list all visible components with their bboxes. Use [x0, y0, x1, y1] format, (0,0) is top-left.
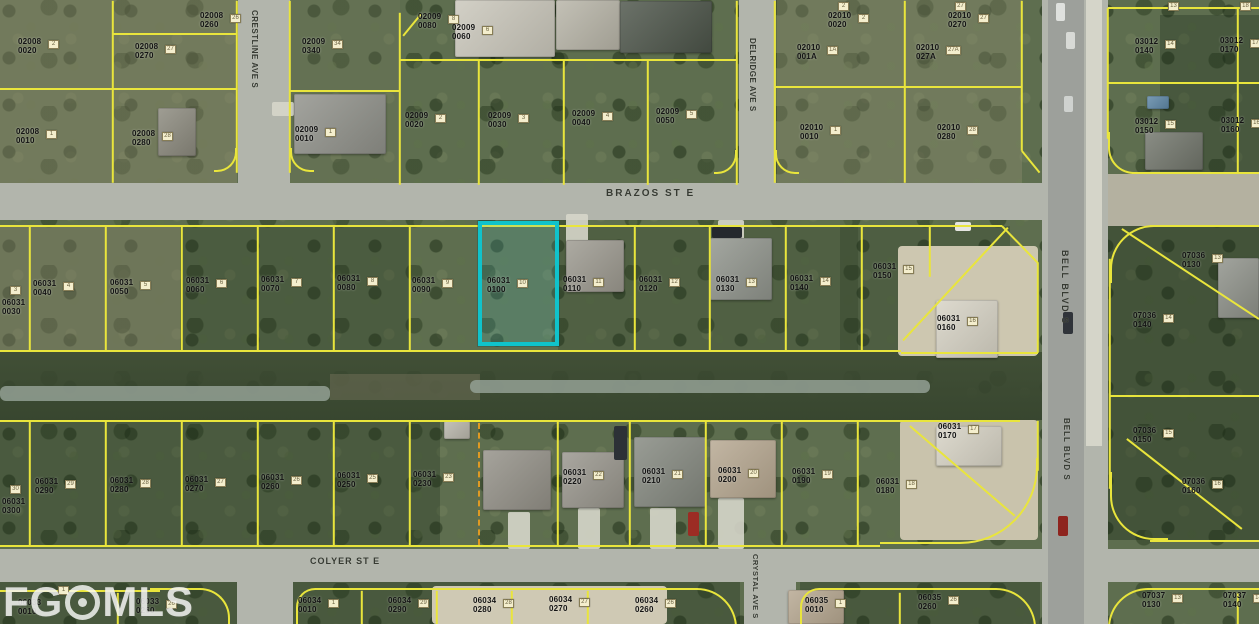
parcel-boundary-line — [1110, 395, 1259, 397]
lot-number-tag: 11 — [593, 278, 604, 287]
lot-number-tag: 2 — [48, 40, 59, 49]
lot-number-tag: 2 — [838, 2, 849, 11]
parcel-label: 02010 0280 — [937, 124, 960, 142]
parcel-label: 02008 0260 — [200, 12, 223, 30]
lot-number-tag: 7 — [291, 278, 302, 287]
parcel-label: 06031 0140 — [790, 275, 813, 293]
lot-number-tag: 27 — [215, 478, 226, 487]
driveway — [508, 512, 530, 549]
lot-number-tag: 14 — [1163, 314, 1174, 323]
lot-number-tag: 28 — [140, 479, 151, 488]
street-label: DELRIDGE AVE S — [748, 38, 757, 112]
parcel-label: 06031 0070 — [261, 276, 284, 294]
street-label: BRAZOS ST E — [606, 188, 695, 199]
vehicle — [1058, 516, 1068, 536]
parcel-label: 06031 0090 — [412, 277, 435, 295]
road-brazos-st-e — [0, 183, 1046, 220]
parcel-label: 06034 0270 — [549, 596, 572, 614]
parcel-boundary-line — [1109, 259, 1111, 489]
canal-water — [470, 380, 930, 393]
parcel-label: 06031 0110 — [563, 276, 586, 294]
lot-number-tag: 34 — [332, 40, 343, 49]
parcel-label: 02010 0010 — [800, 124, 823, 142]
parcel-boundary-line — [563, 60, 565, 185]
lot-number-tag: 13 — [1168, 2, 1179, 11]
lot-number-tag: 28 — [162, 132, 173, 141]
parcel-label: 06034 0280 — [473, 597, 496, 615]
parcel-label: 02009 0010 — [295, 126, 318, 144]
parcel-boundary-corner — [714, 150, 737, 174]
parcel-label: 06031 0190 — [792, 468, 815, 486]
road-delridge-ave-s — [739, 0, 776, 190]
lot-number-tag: 26 — [291, 476, 302, 485]
parcel-boundary-line — [478, 60, 480, 185]
vegetation-patch — [0, 226, 180, 350]
parcel-boundary-line — [257, 421, 259, 546]
parcel-label: 06031 0180 — [876, 478, 899, 496]
parcel-boundary-line — [647, 60, 649, 185]
parcel-boundary-line — [181, 421, 183, 546]
parcel-boundary-corner — [1108, 132, 1136, 174]
lot-number-tag: 30 — [10, 485, 21, 494]
lot-number-tag: 6 — [216, 279, 227, 288]
parcel-label: 06031 0260 — [261, 474, 284, 492]
lot-number-tag: 9 — [442, 279, 453, 288]
parcel-label: 06031 0040 — [33, 280, 56, 298]
mls-logo-icon — [65, 585, 100, 620]
parcel-boundary-line — [1237, 8, 1239, 173]
parcel-label: 02010 0020 — [828, 12, 851, 30]
parcel-label: 06031 0100 — [487, 277, 510, 295]
driveway — [718, 498, 744, 549]
lot-number-tag: 18 — [906, 480, 917, 489]
road-bell-path — [1086, 0, 1102, 446]
parcel-label: 02009 0050 — [656, 108, 679, 126]
parcel-boundary-line — [400, 59, 737, 61]
parcel-label: 06031 0280 — [110, 477, 133, 495]
lot-number-tag: 5 — [140, 281, 151, 290]
parcel-label: 06031 0210 — [642, 468, 665, 486]
parcel-boundary-line — [399, 13, 401, 185]
lot-number-tag: 15 — [1163, 429, 1174, 438]
parcel-label: 06031 0030 — [2, 299, 25, 317]
lot-number-tag: 17 — [1250, 39, 1259, 48]
parcel-label: 02009 0030 — [488, 112, 511, 130]
parcel-label: 02008 0270 — [135, 43, 158, 61]
parcel-label: 06034 0290 — [388, 597, 411, 615]
parcel-label: 02010 0270 — [948, 12, 971, 30]
parcel-boundary-line — [236, 1, 238, 173]
parcel-label: 02009 0340 — [302, 38, 325, 56]
vehicle — [1064, 96, 1073, 112]
parcel-boundary-line — [290, 90, 400, 92]
lot-number-tag: 2 — [435, 114, 446, 123]
parcel-label: 06031 0080 — [337, 275, 360, 293]
parcel-label: 03012 0150 — [1135, 118, 1158, 136]
parcel-label: 06031 0160 — [937, 315, 960, 333]
parcel-boundary-line — [861, 226, 863, 351]
parcel-label: 02009 0060 — [452, 24, 475, 42]
parcel-label: 07037 0130 — [1142, 592, 1165, 610]
parcel-label: 07036 0150 — [1133, 427, 1156, 445]
fgcmls-watermark: FGMLS — [3, 580, 194, 624]
parcel-split-dashed-line — [478, 423, 480, 545]
parcel-boundary-line — [1132, 172, 1259, 174]
parcel-boundary-line — [409, 421, 411, 546]
parcel-boundary-line — [257, 226, 259, 351]
parcel-label: 06031 0230 — [413, 471, 436, 489]
lot-number-tag: 4 — [63, 282, 74, 291]
parcel-boundary-line — [181, 226, 183, 351]
parcel-boundary-line — [785, 226, 787, 351]
parcel-boundary-line — [901, 352, 1038, 354]
parcel-label: 06031 0220 — [563, 469, 586, 487]
parcel-boundary-line — [904, 1, 906, 183]
lot-number-tag: 26 — [665, 599, 676, 608]
lot-number-tag: 15 — [1165, 120, 1176, 129]
parcel-boundary-line — [333, 226, 335, 351]
parcel-label: 06031 0170 — [938, 423, 961, 441]
building — [483, 450, 551, 510]
lot-number-tag: 23 — [443, 473, 454, 482]
parcel-boundary-line — [29, 421, 31, 546]
parcel-boundary-line — [29, 226, 31, 351]
parcel-boundary-line — [929, 226, 931, 277]
parcel-label: 02008 0280 — [132, 130, 155, 148]
watermark-fg: FG — [3, 580, 63, 624]
parcel-label: 03012 0140 — [1135, 38, 1158, 56]
lot-number-tag: 5 — [686, 110, 697, 119]
parcel-label: 06031 0200 — [718, 467, 741, 485]
parcel-label: 02008 0010 — [16, 128, 39, 146]
street-label: CRYSTAL AVE S — [751, 554, 760, 619]
watermark-mls: MLS — [102, 580, 194, 624]
lot-number-tag: 16 — [967, 317, 978, 326]
parcel-boundary-line — [557, 421, 559, 546]
parcel-label: 06031 0150 — [873, 263, 896, 281]
lot-number-tag: 4 — [602, 112, 613, 121]
lot-number-tag: 15 — [903, 265, 914, 274]
parcel-label: 02009 0080 — [418, 13, 441, 31]
lot-number-tag: 2 — [858, 14, 869, 23]
lot-number-tag: 10 — [517, 279, 528, 288]
lot-number-tag: 29 — [65, 480, 76, 489]
vehicle — [1066, 32, 1075, 49]
parcel-label: 06034 0010 — [298, 597, 321, 615]
parcel-boundary-line — [289, 1, 291, 173]
street-label: BELL BLVD S — [1062, 418, 1071, 481]
parcel-label: 07036 0160 — [1182, 478, 1205, 496]
parcel-label: 06035 0260 — [918, 594, 941, 612]
lot-number-tag: 25 — [367, 474, 378, 483]
lot-number-tag: 17 — [968, 425, 979, 434]
vehicle — [712, 227, 742, 238]
parcel-label: 06031 0050 — [110, 279, 133, 297]
lot-number-tag: 28 — [967, 126, 978, 135]
road-west-ave — [237, 582, 293, 624]
parcel-label: 03012 0170 — [1220, 37, 1243, 55]
parcel-label: 06031 0060 — [186, 277, 209, 295]
parcel-label: 06031 0130 — [716, 276, 739, 294]
parcel-boundary-line — [113, 33, 237, 35]
parcel-boundary-line — [1037, 263, 1039, 353]
road-bell-shoulder — [1108, 174, 1259, 226]
lot-number-tag: 27A — [946, 46, 961, 55]
parcel-boundary-line — [1150, 540, 1259, 542]
lot-number-tag: 1 — [835, 599, 846, 608]
lot-number-tag: 22 — [593, 471, 604, 480]
parcel-boundary-line — [634, 226, 636, 351]
lot-number-tag: 6 — [482, 26, 493, 35]
parcel-label: 06031 0120 — [639, 276, 662, 294]
lot-number-tag: 26 — [948, 596, 959, 605]
driveway — [650, 508, 676, 549]
lot-number-tag: 16 — [1251, 119, 1259, 128]
parcel-boundary-line — [105, 421, 107, 546]
street-label: CRESTLINE AVE S — [250, 10, 259, 88]
lot-number-tag: 19 — [822, 470, 833, 479]
lot-number-tag: 1 — [328, 599, 339, 608]
parcel-boundary-line — [105, 226, 107, 351]
parcel-boundary-line — [0, 420, 1020, 422]
canal-bare-bank — [330, 374, 480, 400]
parcel-boundary-line — [333, 421, 335, 546]
parcel-label: 07037 0140 — [1223, 592, 1246, 610]
parcel-label: 07036 0130 — [1182, 252, 1205, 270]
lot-number-tag: 1 — [325, 128, 336, 137]
parcel-label: 06031 0290 — [35, 478, 58, 496]
parcel-label: 02009 0020 — [405, 112, 428, 130]
parcel-boundary-line — [409, 226, 411, 351]
parcel-boundary-line — [1021, 150, 1040, 173]
parcel-boundary-line — [857, 421, 859, 546]
lot-number-tag: 14 — [1253, 594, 1259, 603]
parcel-boundary-line — [0, 88, 237, 90]
vehicle — [688, 512, 699, 536]
building — [1145, 132, 1203, 170]
lot-number-tag: 16 — [1212, 480, 1223, 489]
lot-number-tag: 29 — [418, 599, 429, 608]
lot-number-tag: 14 — [1165, 40, 1176, 49]
lot-number-tag: 1 — [830, 126, 841, 135]
lot-number-tag: 26 — [230, 14, 241, 23]
parcel-label: 06031 0300 — [2, 498, 25, 516]
street-label: BELL BLVD S — [1060, 250, 1070, 325]
canal-water — [0, 386, 330, 401]
parcel-label: 03012 0160 — [1221, 117, 1244, 135]
parcel-boundary-line — [1021, 1, 1023, 151]
building — [1218, 258, 1259, 318]
lot-number-tag: 8 — [367, 277, 378, 286]
lot-number-tag: 20 — [748, 469, 759, 478]
building — [444, 421, 470, 439]
parcel-boundary-line — [705, 421, 707, 546]
building — [620, 1, 712, 53]
lot-number-tag: 27 — [165, 45, 176, 54]
lot-number-tag: 13 — [1212, 254, 1223, 263]
building — [556, 0, 620, 50]
parcel-boundary-line — [1107, 8, 1109, 139]
driveway — [578, 508, 600, 549]
parcel-boundary-line — [781, 421, 783, 546]
parcel-label: 02010 027A — [916, 44, 939, 62]
parcel-boundary-line — [0, 545, 880, 547]
parcel-boundary-line — [709, 226, 711, 351]
lot-number-tag: 28 — [503, 599, 514, 608]
building — [1147, 96, 1169, 109]
lot-number-tag: 27 — [978, 14, 989, 23]
parcel-label: 06031 0250 — [337, 472, 360, 490]
lot-number-tag: 18 — [1240, 2, 1251, 11]
parcel-boundary-line — [0, 350, 901, 352]
parcel-label: 06031 0270 — [185, 476, 208, 494]
vehicle — [614, 426, 627, 460]
parcel-label: 07036 0140 — [1133, 312, 1156, 330]
lot-number-tag: 12 — [669, 278, 680, 287]
vegetation-patch — [777, 0, 1022, 183]
lot-number-tag: 1 — [46, 130, 57, 139]
parcel-label: 06035 0010 — [805, 597, 828, 615]
lot-number-tag: 27 — [955, 2, 966, 11]
lot-number-tag: 13 — [746, 278, 757, 287]
lot-number-tag: 14 — [820, 277, 831, 286]
parcel-label: 02009 0040 — [572, 110, 595, 128]
mls-map[interactable]: 02008 0020202008 02702702008 02602602008… — [0, 0, 1259, 624]
lot-number-tag: 3 — [518, 114, 529, 123]
lot-number-tag: 21 — [672, 470, 683, 479]
lot-number-tag: 3 — [10, 286, 21, 295]
parcel-label: 02008 0020 — [18, 38, 41, 56]
parcel-label: 06034 0260 — [635, 597, 658, 615]
lot-number-tag: 13 — [1172, 594, 1183, 603]
lot-number-tag: 27 — [579, 598, 590, 607]
lot-number-tag: 1A — [827, 46, 838, 55]
vehicle — [1056, 3, 1065, 21]
building — [294, 94, 386, 154]
parcel-boundary-line — [112, 1, 114, 183]
vegetation-patch — [180, 226, 410, 350]
parcel-label: 02010 001A — [797, 44, 820, 62]
road-crestline-ave-s — [238, 0, 290, 190]
parcel-boundary-line — [629, 421, 631, 546]
street-label: COLYER ST E — [310, 556, 380, 566]
parcel-boundary-line — [775, 86, 1022, 88]
